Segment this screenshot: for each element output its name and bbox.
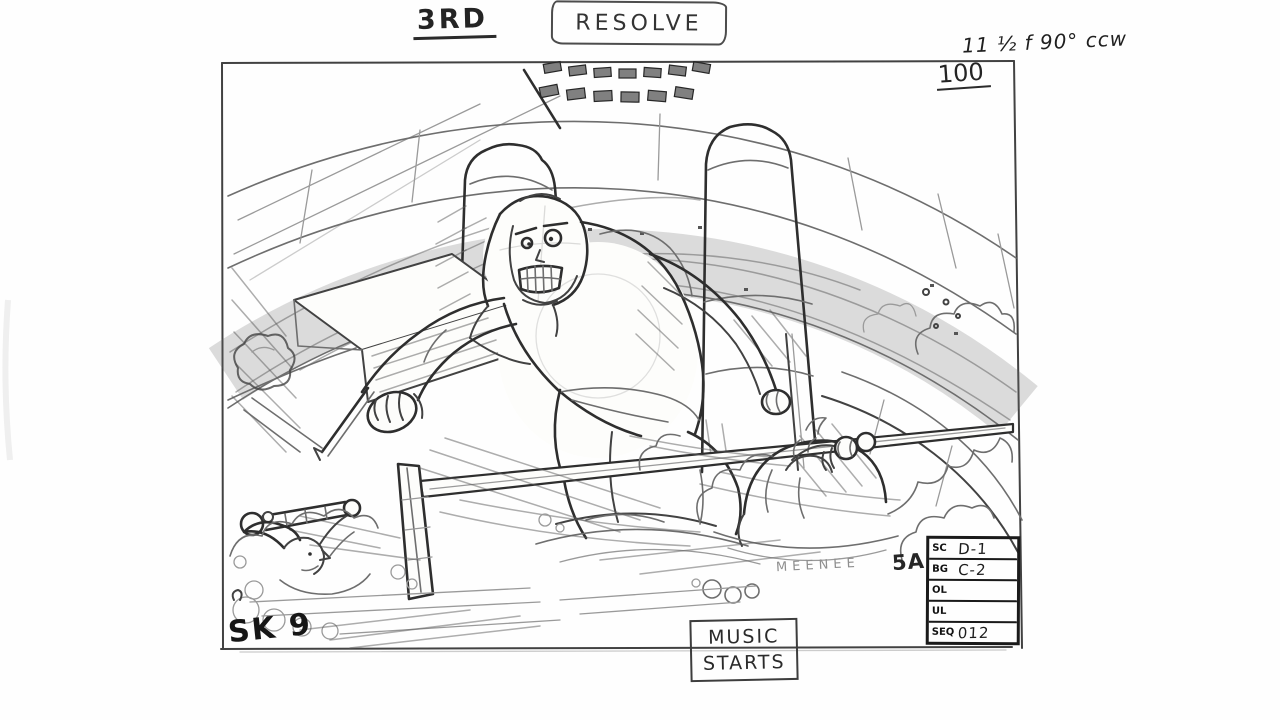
slate-row: SC D-1 — [929, 539, 1017, 558]
slate-row-label: OL — [929, 585, 958, 596]
slate-row: SEQ 012 — [929, 621, 1017, 642]
slate-row-label: BG — [929, 564, 958, 575]
sequence-label: 3RD — [413, 3, 497, 40]
storyboard-sketch — [0, 0, 1280, 720]
slate-row-label: SEQ — [929, 627, 958, 638]
crowd-seats — [539, 62, 710, 103]
slate-row: BG C-2 — [929, 558, 1017, 579]
slate-row-label: SC — [929, 543, 958, 554]
water-ripples — [536, 513, 760, 564]
slate-row-label: UL — [929, 606, 958, 617]
slate-row-value: C-2 — [958, 560, 987, 578]
slate-row: OL — [929, 579, 1017, 600]
music-cue-line2: STARTS — [703, 651, 786, 675]
action-cue-box: RESOLVE — [551, 0, 727, 45]
slate-row: UL — [929, 600, 1017, 621]
storyboard-page: 3RD RESOLVE 11 ½ f 90° ccw 100 SK 9 MEEN… — [0, 0, 1280, 720]
panel-code: 5A — [891, 549, 925, 575]
slate-row-value: D-1 — [958, 539, 989, 557]
slate-table: SC D-1 BG C-2 OL UL SEQ 012 — [926, 536, 1021, 645]
frame-count: 100 — [935, 57, 991, 91]
music-cue-box: MUSIC STARTS — [689, 618, 798, 682]
music-cue-line1: MUSIC — [708, 625, 780, 648]
scan-smudge — [5, 300, 10, 460]
action-cue-label: RESOLVE — [575, 10, 702, 36]
slate-row-value: 012 — [957, 623, 990, 641]
